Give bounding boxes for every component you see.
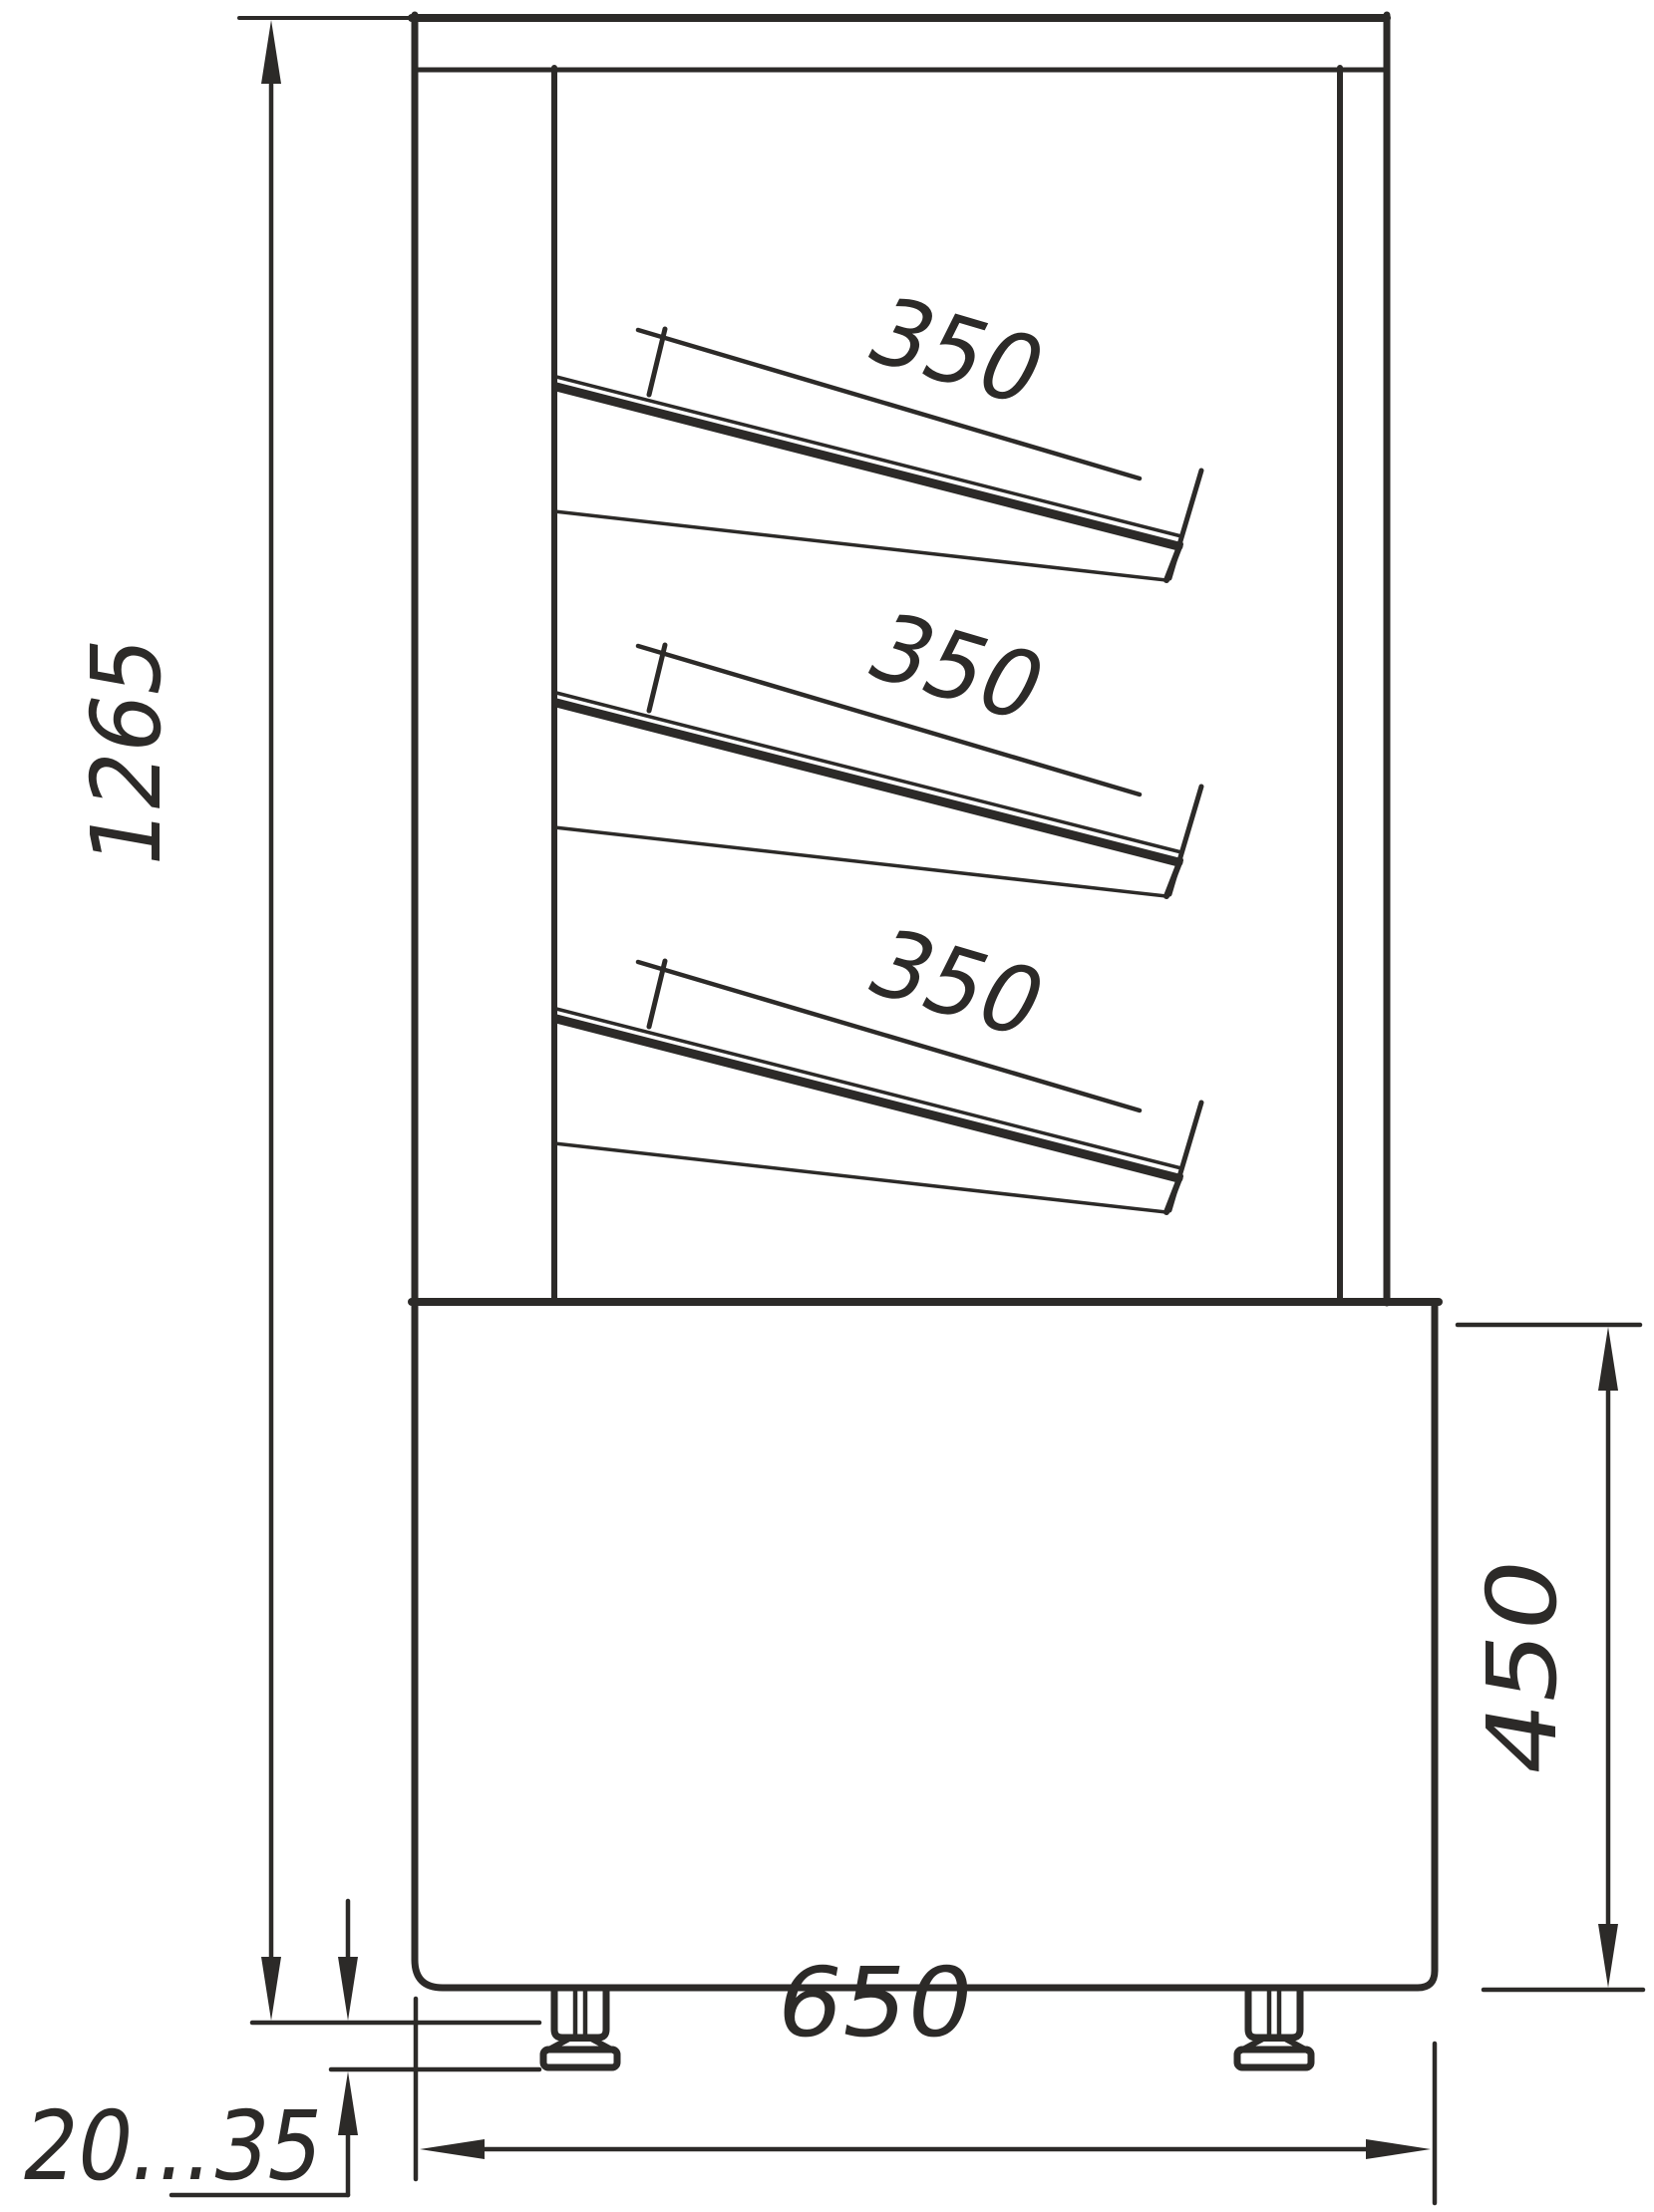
technical-drawing: 1265 350 350 350 450 650 [0,0,1654,2212]
drawing-sheet: 1265 350 350 350 450 650 [0,0,1654,2212]
arrow-down-icon [1598,1924,1618,1988]
arrow-left-icon [420,2139,485,2159]
arrow-right-icon [1366,2139,1431,2159]
dim-label-overall-height: 1265 [71,627,182,876]
dim-base-height: 450 [1458,1325,1643,1990]
foot-left [543,1988,617,2067]
arrow-down-icon [261,1957,281,2021]
dim-shelf-depths: 350 350 350 [850,278,1062,1057]
base-body [415,1302,1435,1988]
dim-label-base-height: 450 [1467,1550,1578,1784]
arrow-up-icon [261,20,281,84]
foot-right [1237,1988,1311,2067]
shelves [554,329,1201,1212]
dim-overall-height: 1265 [71,18,539,2023]
arrow-down-icon [338,1957,358,2021]
dim-label-foot-range: 20...35 [14,2090,333,2202]
arrow-up-icon [1598,1327,1618,1391]
dim-label-base-width: 650 [768,1947,982,2058]
dim-foot-range: 20...35 [14,1901,539,2202]
arrow-up-icon [338,2071,358,2135]
